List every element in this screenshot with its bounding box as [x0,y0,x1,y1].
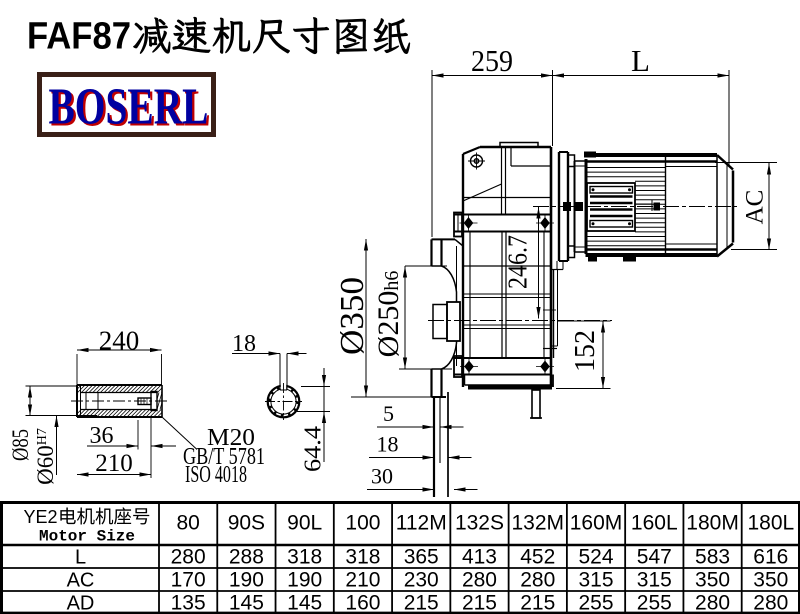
svg-text:524: 524 [579,546,614,569]
svg-text:30: 30 [371,464,393,489]
svg-text:190: 190 [287,569,322,592]
svg-text:80: 80 [176,512,199,535]
svg-text:160L: 160L [631,512,678,535]
svg-text:616: 616 [753,546,788,569]
svg-text:413: 413 [462,546,497,569]
svg-text:215: 215 [462,592,497,614]
svg-text:215: 215 [520,592,555,614]
svg-text:132M: 132M [511,512,564,535]
svg-text:18: 18 [232,331,256,357]
svg-text:ISO 4018: ISO 4018 [185,462,247,488]
svg-text:259: 259 [471,43,513,78]
svg-text:160M: 160M [570,512,623,535]
svg-text:190: 190 [229,569,264,592]
svg-text:350: 350 [695,569,730,592]
svg-text:547: 547 [637,546,672,569]
svg-text:5: 5 [383,401,394,426]
svg-text:YE2: YE2 [24,507,58,527]
svg-text:170: 170 [171,569,206,592]
svg-text:318: 318 [287,546,322,569]
svg-text:FAF87: FAF87 [27,16,131,58]
svg-text:160: 160 [345,592,380,614]
svg-text:145: 145 [229,592,264,614]
svg-text:L: L [631,43,650,78]
svg-text:180M: 180M [686,512,739,535]
svg-text:280: 280 [462,569,497,592]
svg-text:AD: AD [67,593,95,614]
svg-text:210: 210 [95,450,133,477]
svg-text:255: 255 [637,592,672,614]
svg-text:36: 36 [90,423,114,449]
svg-text:280: 280 [171,546,206,569]
svg-text:315: 315 [579,569,614,592]
svg-text:135: 135 [171,592,206,614]
svg-text:152: 152 [570,330,601,372]
svg-text:18: 18 [377,432,399,457]
svg-text:Motor Size: Motor Size [39,528,135,546]
svg-text:132S: 132S [455,512,504,535]
svg-text:BOSERL: BOSERL [49,79,209,136]
svg-text:230: 230 [404,569,439,592]
svg-text:215: 215 [404,592,439,614]
svg-text:452: 452 [520,546,555,569]
svg-text:350: 350 [753,569,788,592]
svg-text:583: 583 [695,546,730,569]
svg-text:L: L [75,547,86,569]
svg-text:145: 145 [287,592,322,614]
svg-text:318: 318 [345,546,380,569]
svg-text:64.4: 64.4 [301,426,327,472]
svg-text:255: 255 [579,592,614,614]
svg-text:210: 210 [345,569,380,592]
svg-text:AC: AC [742,190,769,225]
svg-text:280: 280 [695,592,730,614]
svg-text:315: 315 [637,569,672,592]
svg-text:280: 280 [520,569,555,592]
svg-text:Ø85: Ø85 [8,429,33,461]
svg-text:90S: 90S [228,512,265,535]
svg-text:246.7: 246.7 [503,235,533,289]
svg-text:Ø350: Ø350 [334,277,371,355]
svg-text:180L: 180L [747,512,794,535]
svg-text:365: 365 [404,546,439,569]
svg-text:112M: 112M [396,512,447,535]
svg-text:240: 240 [99,326,140,356]
svg-text:280: 280 [753,592,788,614]
svg-text:AC: AC [67,570,95,592]
svg-text:90L: 90L [287,512,322,535]
svg-text:100: 100 [345,512,380,535]
svg-text:288: 288 [229,546,264,569]
